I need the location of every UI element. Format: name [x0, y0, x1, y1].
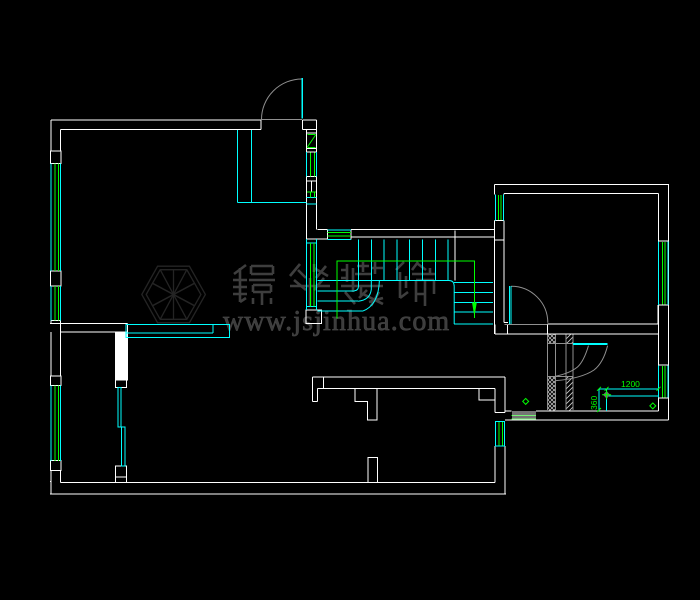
svg-text:1200: 1200: [621, 379, 640, 389]
svg-text:360: 360: [589, 396, 599, 410]
svg-text:www.jsjinhua.com: www.jsjinhua.com: [223, 306, 450, 337]
